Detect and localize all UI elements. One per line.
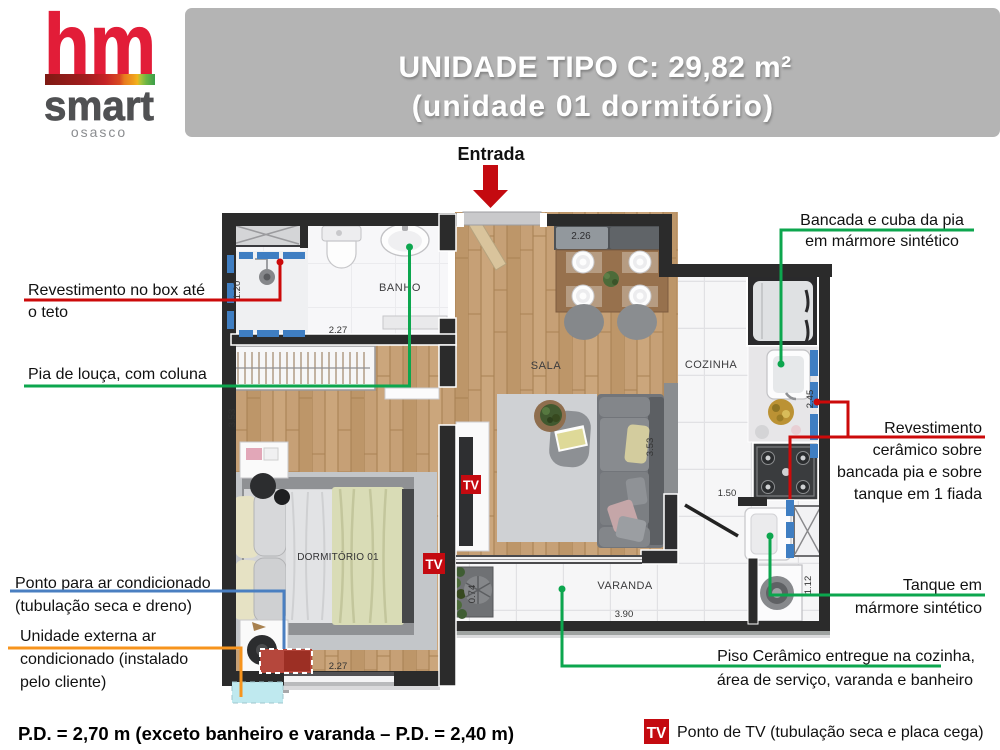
svg-text:Pia de louça, com coluna: Pia de louça, com coluna bbox=[28, 366, 207, 383]
svg-text:2.27: 2.27 bbox=[329, 661, 348, 672]
svg-text:Bancada e cuba da pia: Bancada e cuba da pia bbox=[800, 212, 964, 229]
svg-text:pelo cliente): pelo cliente) bbox=[20, 674, 106, 691]
svg-text:TV: TV bbox=[463, 479, 480, 493]
svg-text:osasco: osasco bbox=[71, 124, 127, 140]
svg-text:1.20: 1.20 bbox=[232, 281, 243, 300]
svg-text:1.12: 1.12 bbox=[803, 576, 814, 595]
svg-text:UNIDADE TIPO C: 29,82 m²: UNIDADE TIPO C: 29,82 m² bbox=[398, 51, 791, 84]
svg-text:TV: TV bbox=[425, 557, 442, 572]
svg-text:SALA: SALA bbox=[531, 360, 562, 372]
svg-text:BANHO: BANHO bbox=[379, 282, 421, 294]
svg-text:Entrada: Entrada bbox=[457, 144, 525, 164]
svg-text:(unidade 01 dormitório): (unidade 01 dormitório) bbox=[412, 90, 775, 123]
svg-text:VARANDA: VARANDA bbox=[597, 580, 652, 592]
svg-text:smart: smart bbox=[44, 82, 154, 129]
svg-text:2.27: 2.27 bbox=[329, 325, 348, 336]
svg-text:em mármore sintético: em mármore sintético bbox=[805, 233, 959, 250]
svg-text:bancada pia e sobre: bancada pia e sobre bbox=[837, 464, 982, 481]
svg-text:COZINHA: COZINHA bbox=[685, 359, 738, 371]
svg-text:3.53: 3.53 bbox=[645, 438, 656, 457]
svg-text:condicionado (instalado: condicionado (instalado bbox=[20, 651, 188, 668]
svg-text:Revestimento: Revestimento bbox=[884, 420, 982, 437]
svg-text:tanque em 1 fiada: tanque em 1 fiada bbox=[854, 486, 982, 503]
svg-text:cerâmico sobre: cerâmico sobre bbox=[873, 442, 982, 459]
svg-text:DORMITÓRIO 01: DORMITÓRIO 01 bbox=[297, 550, 379, 563]
svg-text:2.26: 2.26 bbox=[571, 231, 591, 242]
svg-text:Revestimento no box até: Revestimento no box até bbox=[28, 282, 205, 299]
svg-text:Piso Cerâmico entregue na cozi: Piso Cerâmico entregue na cozinha, bbox=[717, 648, 975, 665]
svg-text:área de serviço, varanda e ban: área de serviço, varanda e banheiro bbox=[717, 672, 973, 689]
svg-text:3.90: 3.90 bbox=[615, 609, 634, 620]
svg-text:TV: TV bbox=[647, 725, 667, 742]
svg-text:P.D. = 2,70 m (exceto banheiro: P.D. = 2,70 m (exceto banheiro e varanda… bbox=[18, 723, 514, 744]
svg-text:Tanque em: Tanque em bbox=[903, 577, 982, 594]
svg-text:o teto: o teto bbox=[28, 304, 68, 321]
svg-text:1.50: 1.50 bbox=[718, 488, 737, 499]
svg-text:2.45: 2.45 bbox=[805, 390, 816, 409]
svg-text:3.53: 3.53 bbox=[227, 409, 238, 428]
svg-text:0.74: 0.74 bbox=[467, 585, 478, 604]
svg-text:Unidade externa ar: Unidade externa ar bbox=[20, 628, 157, 645]
svg-text:Ponto de TV (tubulação seca e: Ponto de TV (tubulação seca e placa cega… bbox=[677, 724, 984, 741]
svg-text:mármore sintético: mármore sintético bbox=[855, 600, 982, 617]
svg-text:(tubulação seca e dreno): (tubulação seca e dreno) bbox=[15, 598, 192, 615]
svg-text:Ponto para ar condicionado: Ponto para ar condicionado bbox=[15, 575, 211, 592]
